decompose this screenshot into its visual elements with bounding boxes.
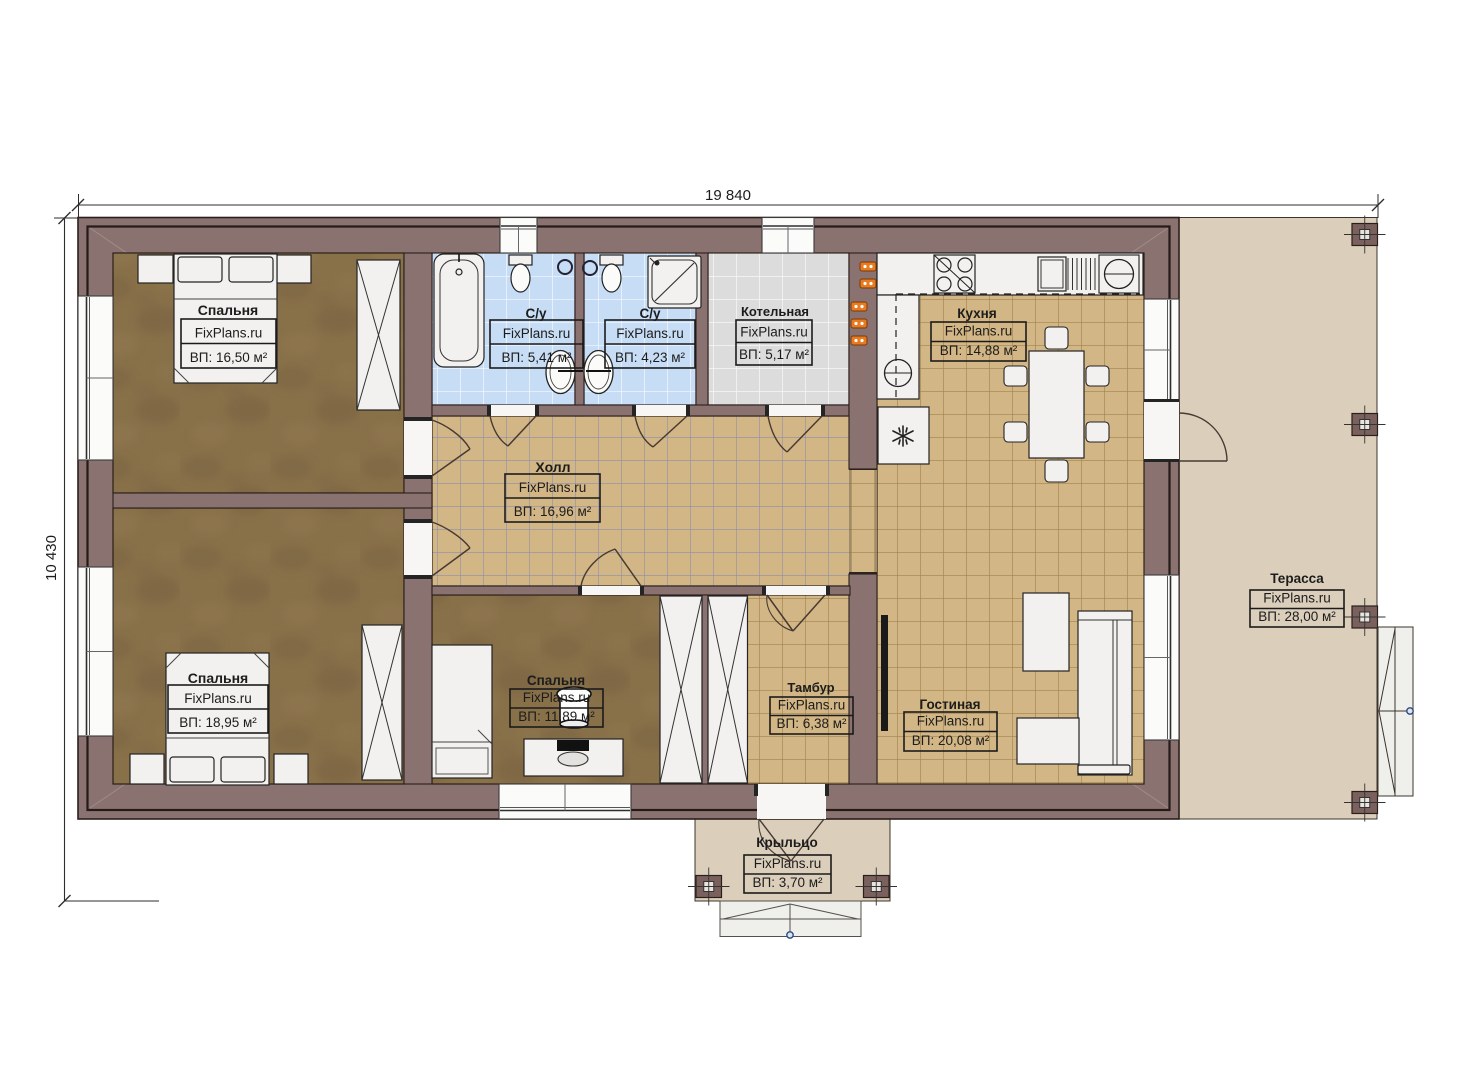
- svg-text:ВП: 28,00 м²: ВП: 28,00 м²: [1258, 609, 1336, 624]
- svg-text:Котельная: Котельная: [741, 304, 809, 319]
- svg-text:Спальня: Спальня: [188, 670, 248, 686]
- svg-text:Спальня: Спальня: [527, 673, 585, 688]
- svg-text:Крыльцо: Крыльцо: [756, 835, 817, 850]
- svg-text:Спальня: Спальня: [198, 302, 258, 318]
- svg-text:ВП: 20,08 м²: ВП: 20,08 м²: [912, 733, 990, 748]
- svg-text:ВП: 11,89 м²: ВП: 11,89 м²: [518, 709, 595, 724]
- svg-text:FixPlans.ru: FixPlans.ru: [917, 714, 985, 729]
- svg-text:10 430: 10 430: [43, 535, 60, 581]
- svg-text:ВП: 16,96 м²: ВП: 16,96 м²: [514, 504, 592, 519]
- svg-text:Холл: Холл: [535, 459, 570, 475]
- svg-text:FixPlans.ru: FixPlans.ru: [184, 691, 252, 706]
- svg-text:ВП: 6,38 м²: ВП: 6,38 м²: [776, 716, 847, 731]
- svg-text:FixPlans.ru: FixPlans.ru: [754, 856, 822, 871]
- svg-text:FixPlans.ru: FixPlans.ru: [503, 326, 571, 341]
- svg-text:Кухня: Кухня: [957, 306, 996, 321]
- svg-text:Гостиная: Гостиная: [919, 697, 980, 712]
- svg-text:FixPlans.ru: FixPlans.ru: [616, 326, 684, 341]
- svg-text:ВП: 5,17 м²: ВП: 5,17 м²: [739, 347, 810, 362]
- svg-text:FixPlans.ru: FixPlans.ru: [1263, 591, 1331, 606]
- svg-text:Тамбур: Тамбур: [787, 680, 834, 695]
- svg-text:С/у: С/у: [639, 306, 661, 321]
- svg-text:ВП: 18,95 м²: ВП: 18,95 м²: [179, 715, 257, 730]
- svg-text:С/у: С/у: [525, 306, 547, 321]
- svg-text:ВП: 4,23 м²: ВП: 4,23 м²: [615, 350, 686, 365]
- svg-text:ВП: 14,88 м²: ВП: 14,88 м²: [940, 343, 1018, 358]
- svg-text:Терасса: Терасса: [1270, 571, 1324, 586]
- svg-text:FixPlans.ru: FixPlans.ru: [523, 690, 591, 705]
- svg-text:ВП: 5,41 м²: ВП: 5,41 м²: [501, 350, 572, 365]
- svg-text:19 840: 19 840: [705, 187, 751, 204]
- svg-text:FixPlans.ru: FixPlans.ru: [740, 325, 808, 340]
- svg-text:FixPlans.ru: FixPlans.ru: [195, 326, 263, 341]
- svg-text:FixPlans.ru: FixPlans.ru: [945, 324, 1013, 339]
- svg-text:FixPlans.ru: FixPlans.ru: [778, 698, 846, 713]
- svg-text:ВП: 3,70 м²: ВП: 3,70 м²: [752, 875, 823, 890]
- svg-text:ВП: 16,50 м²: ВП: 16,50 м²: [190, 350, 268, 365]
- svg-text:FixPlans.ru: FixPlans.ru: [519, 480, 587, 495]
